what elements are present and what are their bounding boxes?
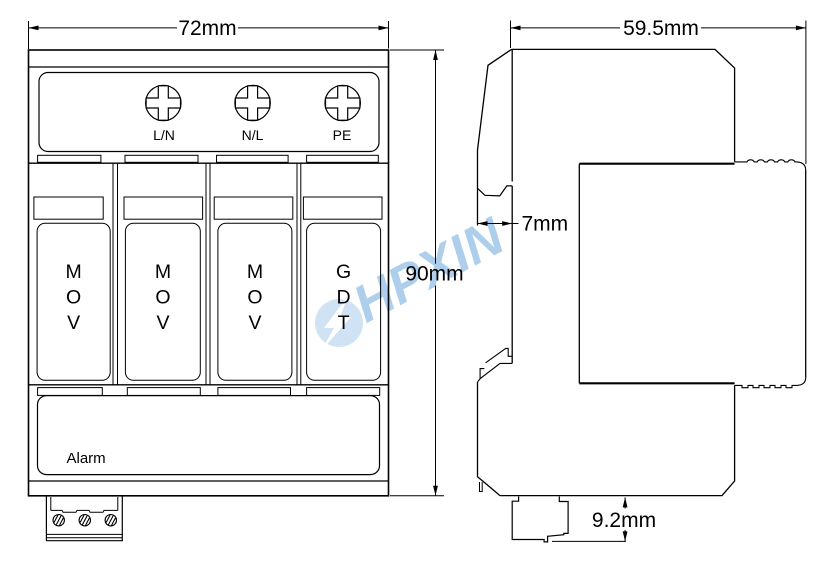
svg-text:90mm: 90mm <box>405 263 463 286</box>
svg-text:GDT: GDT <box>336 261 351 334</box>
svg-text:MOV: MOV <box>247 261 263 334</box>
svg-text:72mm: 72mm <box>178 17 236 40</box>
svg-text:MOV: MOV <box>65 261 81 334</box>
svg-text:MOV: MOV <box>155 261 171 334</box>
svg-text:59.5mm: 59.5mm <box>623 17 699 40</box>
svg-text:N/L: N/L <box>242 127 264 143</box>
svg-text:7mm: 7mm <box>522 213 569 236</box>
svg-text:9.2mm: 9.2mm <box>592 509 656 532</box>
svg-text:PE: PE <box>333 127 352 143</box>
svg-text:L/N: L/N <box>153 127 175 143</box>
svg-text:Alarm: Alarm <box>67 450 106 467</box>
